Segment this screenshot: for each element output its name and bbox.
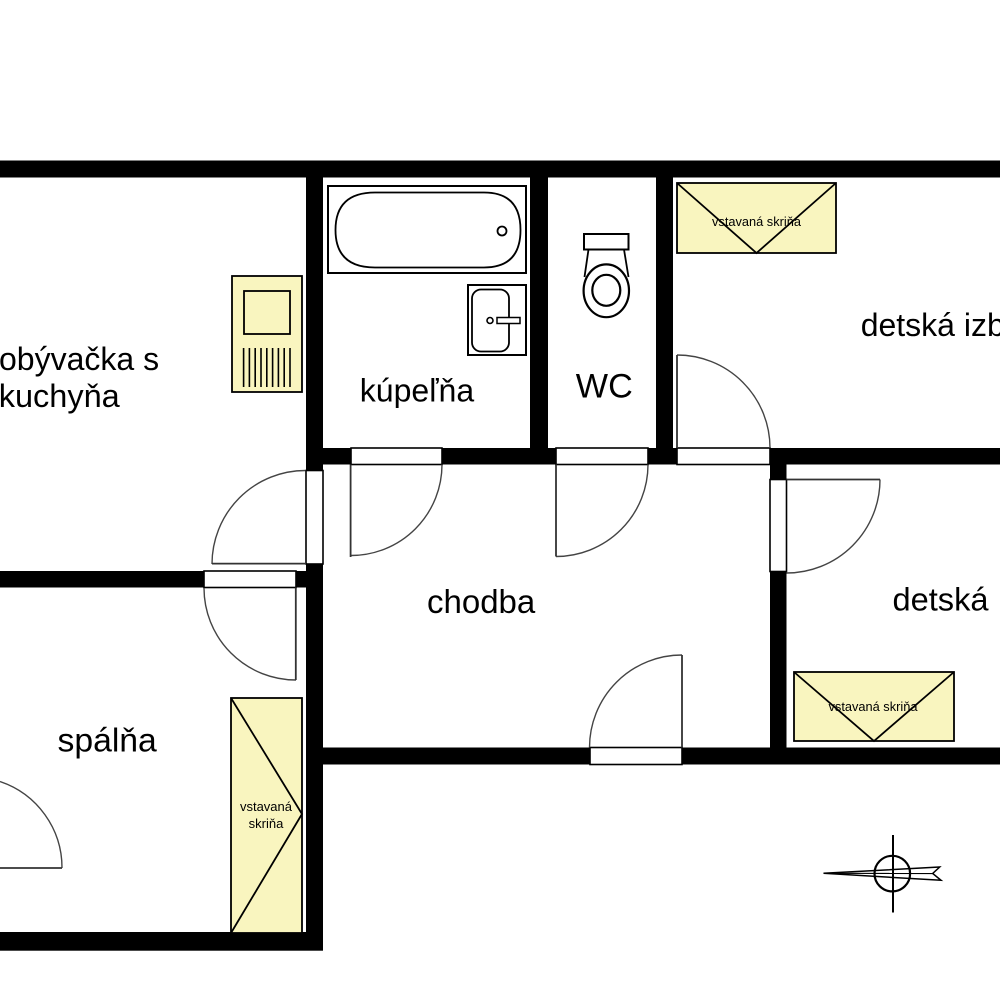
svg-text:detská izba: detská izba bbox=[861, 307, 1000, 343]
svg-text:vstavaná skriňa: vstavaná skriňa bbox=[712, 214, 802, 229]
svg-text:spálňa: spálňa bbox=[58, 721, 158, 759]
svg-text:chodba: chodba bbox=[427, 583, 536, 620]
svg-text:detská: detská bbox=[893, 580, 990, 617]
svg-text:kuchyňa: kuchyňa bbox=[0, 378, 121, 414]
svg-text:kúpeľňa: kúpeľňa bbox=[360, 373, 475, 409]
svg-text:skriňa: skriňa bbox=[249, 816, 284, 831]
svg-text:WC: WC bbox=[576, 368, 633, 406]
svg-text:vstavaná skriňa: vstavaná skriňa bbox=[829, 699, 919, 714]
svg-text:obývačka s: obývačka s bbox=[0, 341, 159, 377]
svg-text:vstavaná: vstavaná bbox=[240, 799, 293, 814]
